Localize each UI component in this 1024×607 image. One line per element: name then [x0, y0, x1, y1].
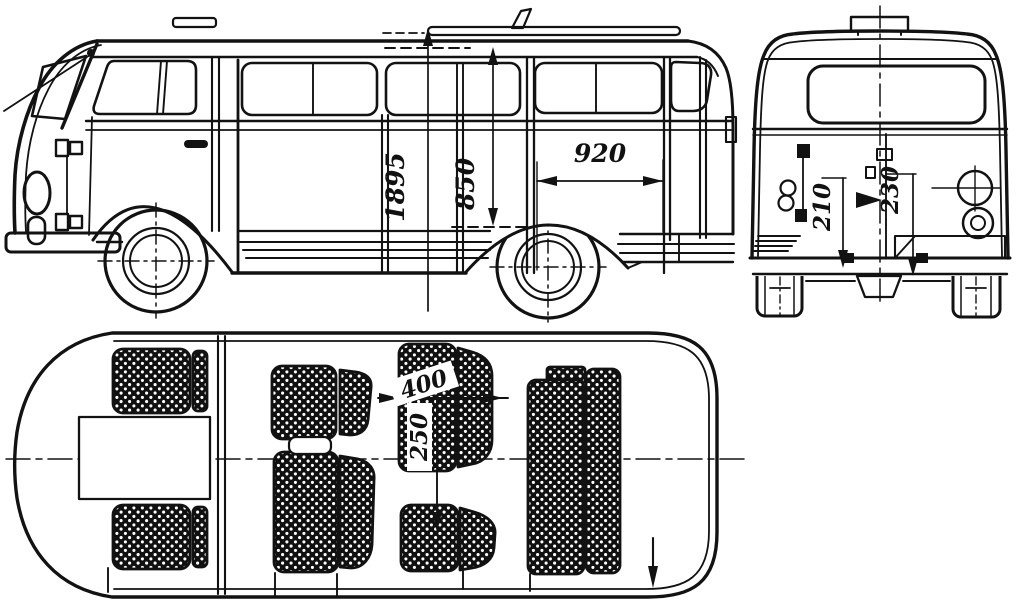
seat-passenger — [113, 505, 207, 569]
louvers — [754, 236, 800, 251]
rear-view: 210 230 — [748, 6, 1010, 317]
roof-fittings — [173, 9, 680, 35]
dim-label-850: 850 — [451, 157, 480, 211]
plan-view: 400 250 — [6, 333, 748, 597]
roof-marker — [173, 18, 216, 27]
door-seam — [89, 117, 92, 235]
dim-label-1895: 1895 — [381, 152, 410, 222]
seat-row3-right — [401, 505, 495, 571]
front-wheel — [98, 203, 214, 318]
dim-label-230: 230 — [877, 166, 904, 215]
door-hinges — [56, 140, 82, 230]
tow-bracket — [857, 276, 901, 297]
side-windows — [32, 56, 711, 119]
window-3 — [386, 63, 520, 115]
reflector — [963, 208, 993, 238]
door-handle — [184, 140, 208, 148]
cab-partition — [218, 336, 225, 594]
dim-rear-left: 210 — [809, 178, 848, 268]
turn-signal — [28, 217, 45, 244]
antenna-base — [87, 49, 95, 57]
floor-pointer-arrow — [648, 538, 658, 588]
rear-wheel-arch-panel — [455, 205, 645, 270]
seat-row2-right — [274, 452, 374, 572]
headlight — [24, 172, 50, 214]
side-view: 1895 850 920 — [4, 9, 736, 322]
seat-frame-link — [289, 437, 331, 454]
seat-row2-left — [272, 366, 371, 439]
dim-label-920: 920 — [574, 139, 627, 168]
door-window — [94, 61, 196, 114]
window-2 — [242, 63, 377, 115]
window-4 — [535, 63, 662, 113]
roof-rack-rail — [428, 27, 680, 35]
blueprint-canvas: 1895 850 920 — [0, 0, 1024, 607]
dim-label-210: 210 — [809, 183, 836, 232]
rear-bench — [528, 367, 620, 574]
roof-vent — [512, 9, 531, 28]
rear-window — [808, 66, 985, 123]
engine-cover — [79, 417, 210, 499]
vehicle-blueprint: 1895 850 920 — [0, 0, 1024, 607]
seat-driver — [113, 349, 207, 413]
dim-label-250: 250 — [406, 413, 433, 462]
